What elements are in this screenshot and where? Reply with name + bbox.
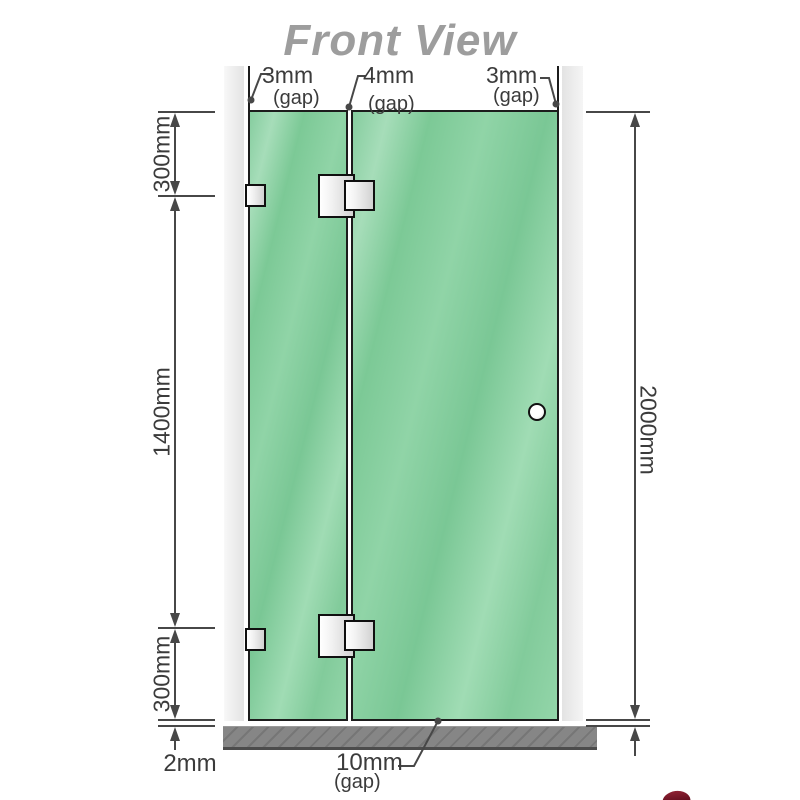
gap-note-middle: (gap) [368, 94, 415, 114]
front-view-diagram: Front View [0, 0, 800, 800]
dim-label-1400: 1400mm [151, 367, 174, 456]
gap-note-right: (gap) [493, 86, 540, 106]
gap-note-left: (gap) [273, 88, 320, 108]
gap-label-right: 3mm [486, 64, 537, 87]
gap-label-middle: 4mm [363, 64, 414, 87]
gap-label-left: 3mm [262, 64, 313, 87]
dim-label-top-300: 300mm [151, 116, 174, 193]
dim-label-2000: 2000mm [637, 385, 660, 474]
dim-label-2mm: 2mm [163, 752, 216, 776]
dim-label-bottom-300: 300mm [151, 636, 174, 713]
dimension-lines [0, 0, 800, 800]
dim-note-10mm: (gap) [334, 772, 381, 792]
